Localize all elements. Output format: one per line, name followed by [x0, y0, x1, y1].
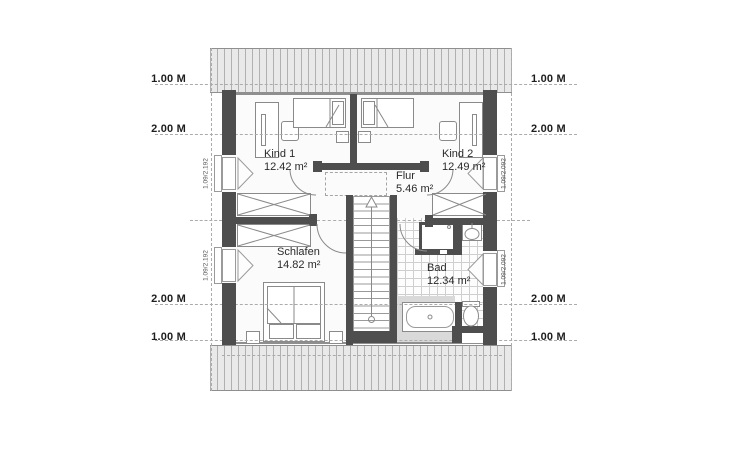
dim-label-1m-top-right: 1.00 M [531, 73, 566, 85]
window-swing-left-1 [238, 158, 253, 189]
room-name-kind2: Kind 2 [442, 148, 485, 161]
stairs-start-circle [369, 317, 375, 323]
floor-plan: 1.00 M 2.00 M 2.00 M 1.00 M 1.00 M 2.00 … [0, 0, 730, 456]
room-name-kind1: Kind 1 [264, 148, 307, 161]
room-label-flur: Flur 5.46 m² [396, 170, 433, 196]
room-label-bad: Bad 12.34 m² [427, 262, 470, 288]
bathtub-inner [407, 307, 454, 328]
bed-fold-schlafen [267, 308, 281, 323]
room-area-schlafen: 14.82 m² [277, 259, 320, 272]
room-name-schlafen: Schlafen [277, 246, 320, 259]
window-dim-label-right-2: 1.09/2.092 [500, 250, 509, 290]
dim-label-2m-top-left: 2.00 M [148, 123, 186, 135]
dim-label-1m-top-left: 1.00 M [148, 73, 186, 85]
wardrobe-x-schlafen [238, 225, 310, 246]
room-area-bad: 12.34 m² [427, 275, 470, 288]
room-area-kind1: 12.42 m² [264, 161, 307, 174]
window-dim-label-left-2: 1.09/2.192 [202, 246, 211, 286]
dim-label-2m-bottom-left: 2.00 M [148, 293, 186, 305]
bathtub-drain [428, 315, 432, 319]
shower-drain [448, 226, 451, 229]
room-label-kind1: Kind 1 12.42 m² [264, 148, 307, 174]
wardrobe-x-kind2 [433, 194, 486, 215]
dim-label-2m-top-right: 2.00 M [531, 123, 566, 135]
stairs-direction-arrow-icon [366, 197, 377, 207]
wardrobe-x-kind1 [238, 194, 310, 215]
room-label-kind2: Kind 2 12.49 m² [442, 148, 485, 174]
window-swing-left-2 [238, 250, 253, 281]
room-name-bad: Bad [427, 262, 470, 275]
window-dim-label-right-1: 1.09/2.092 [500, 154, 509, 194]
dim-label-1m-bottom-left: 1.00 M [148, 331, 186, 343]
washbasin-bowl [465, 229, 479, 240]
door-arc-schlafen [317, 224, 346, 253]
door-arc-bad [400, 224, 427, 251]
room-area-flur: 5.46 m² [396, 183, 433, 196]
shower-control [440, 250, 447, 254]
plan-symbols [0, 0, 730, 456]
room-name-flur: Flur [396, 170, 433, 183]
window-dim-label-left-1: 1.09/2.192 [202, 154, 211, 194]
dim-label-1m-bottom-right: 1.00 M [531, 331, 566, 343]
bed-fold-kind1 [326, 105, 339, 127]
room-label-schlafen: Schlafen 14.82 m² [277, 246, 320, 272]
toilet-bowl [464, 306, 479, 326]
dim-label-2m-bottom-right: 2.00 M [531, 293, 566, 305]
room-area-kind2: 12.49 m² [442, 161, 485, 174]
